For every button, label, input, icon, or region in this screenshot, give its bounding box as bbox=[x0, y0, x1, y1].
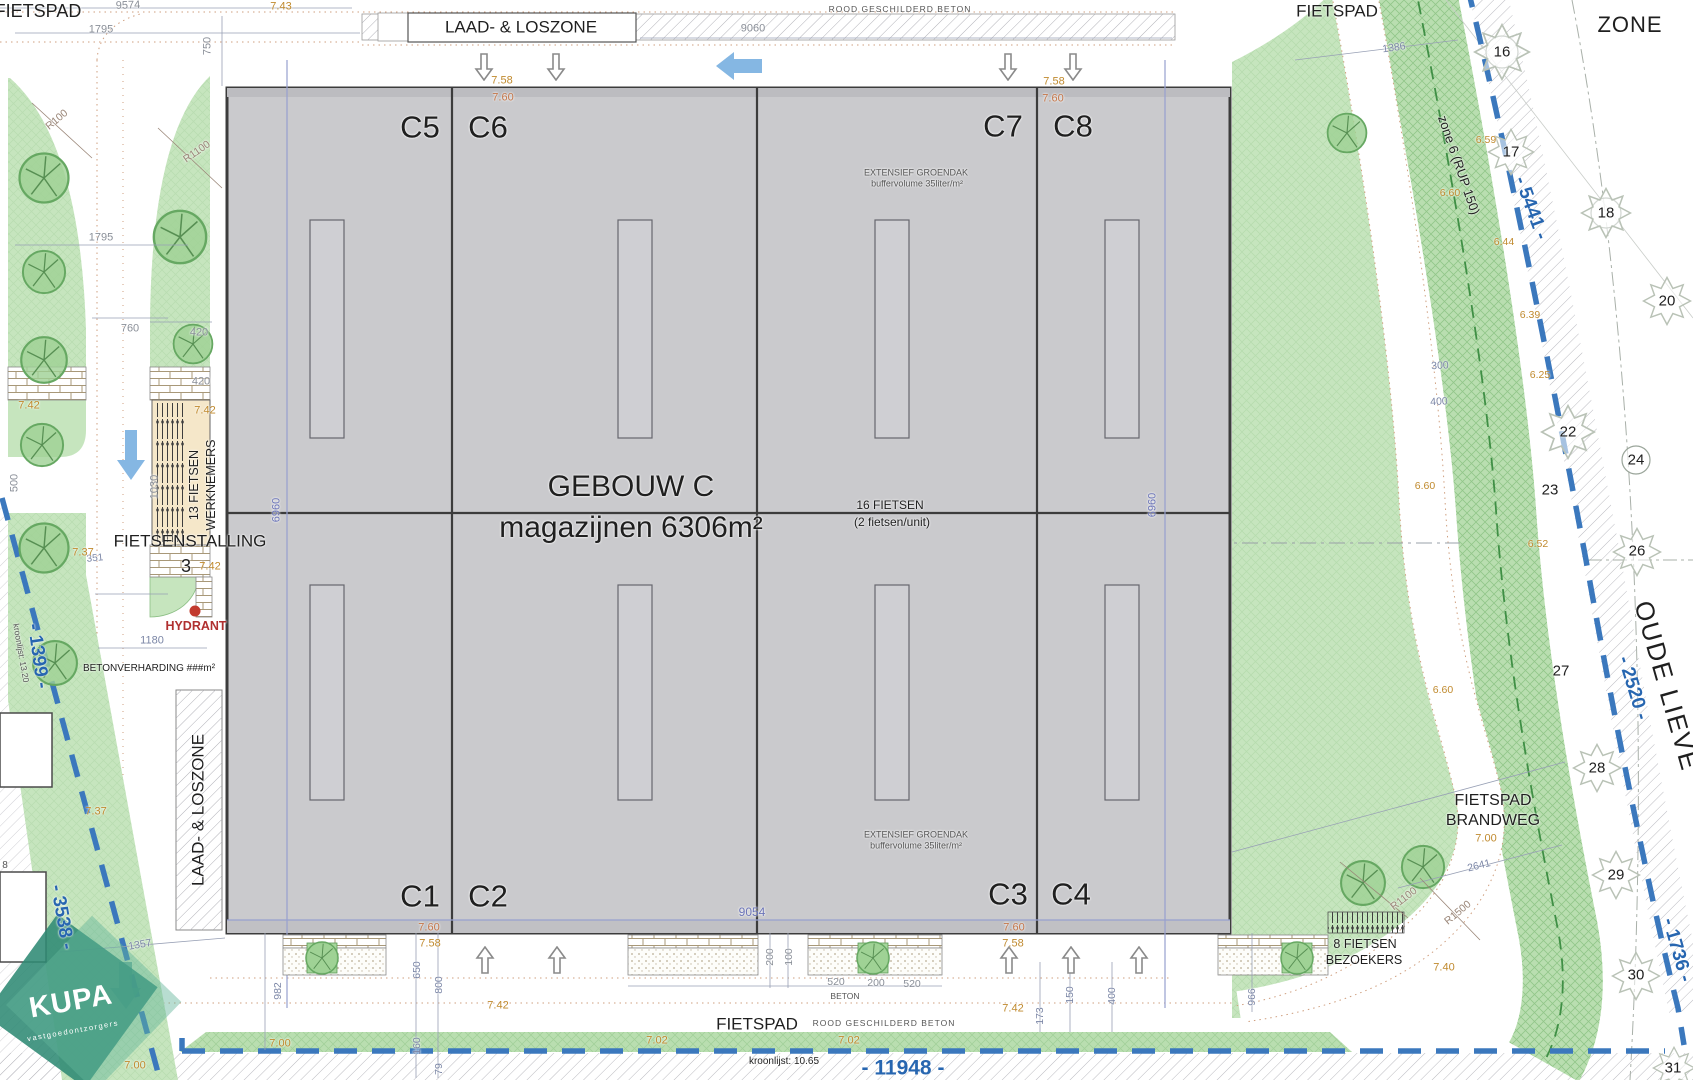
laad-loszone-top: LAAD- & LOSZONE bbox=[445, 19, 597, 36]
dim-520-a: 520 bbox=[827, 977, 845, 988]
level-7-60-d: 7.60 bbox=[1003, 923, 1024, 934]
fietsenstalling: FIETSENSTALLING bbox=[114, 533, 267, 550]
unit-c5: C5 bbox=[400, 112, 440, 143]
level-7-42-a: 7.42 bbox=[18, 401, 39, 412]
dim-160: 160 bbox=[412, 1037, 423, 1055]
level-7-60-b: 7.60 bbox=[1042, 94, 1063, 105]
level-7-60-c: 7.60 bbox=[418, 923, 439, 934]
bikes-16-line2: (2 fietsen/unit) bbox=[854, 516, 930, 528]
tree-num-31: 31 bbox=[1665, 1061, 1682, 1076]
tree-num-29: 29 bbox=[1608, 868, 1625, 883]
level-6-59: 6.59 bbox=[1476, 135, 1496, 146]
level-7-58-b: 7.58 bbox=[1043, 77, 1064, 88]
unit-c3: C3 bbox=[988, 879, 1028, 910]
dim-1736: - 1736 - bbox=[1659, 916, 1693, 984]
dim-200-rot: 200 bbox=[765, 948, 776, 966]
tree-num-18: 18 bbox=[1598, 206, 1615, 221]
groendak-top-line1: EXTENSIEF GROENDAK bbox=[864, 169, 968, 178]
level-7-37-a: 7.37 bbox=[72, 548, 93, 559]
level-7-00-b: 7.00 bbox=[124, 1061, 145, 1072]
level-7-02-b: 7.02 bbox=[838, 1036, 859, 1047]
laad-loszone-left: LAAD- & LOSZONE bbox=[190, 734, 207, 886]
hydrant-label: HYDRANT bbox=[165, 620, 226, 633]
level-7-43: 7.43 bbox=[270, 2, 291, 13]
zone6-rup150: zone 6 (RUP 150) bbox=[1436, 114, 1482, 216]
dim-420-b: 420 bbox=[192, 377, 210, 388]
unit-c8: C8 bbox=[1053, 111, 1093, 142]
beton-small: BETON bbox=[830, 992, 859, 1001]
level-7-00-a: 7.00 bbox=[269, 1039, 290, 1050]
dim-11948: - 11948 - bbox=[862, 1058, 945, 1079]
unit-c1: C1 bbox=[400, 881, 440, 912]
groendak-bottom-line2: buffervolume 35liter/m² bbox=[870, 842, 962, 851]
dim-520-b: 520 bbox=[903, 979, 921, 990]
kroonlijst-10-65: kroonlijst: 10.65 bbox=[749, 1057, 819, 1067]
level-6-39: 6.39 bbox=[1520, 310, 1540, 321]
dim-100-rot: 100 bbox=[784, 948, 795, 966]
fietspad-top-left: FIETSPAD bbox=[0, 2, 81, 20]
dim-5441: - 5441 - bbox=[1511, 174, 1551, 242]
bike-visitors-line2: BEZOEKERS bbox=[1326, 954, 1402, 967]
dim-6960-left: 6960 bbox=[272, 498, 283, 522]
level-6-60-a: 6.60 bbox=[1440, 188, 1460, 199]
level-7-58-d: 7.58 bbox=[1002, 939, 1023, 950]
fietspad-brandweg-line2: BRANDWEG bbox=[1446, 813, 1540, 829]
level-6-60-c: 6.60 bbox=[1433, 685, 1453, 696]
dim-420-a: 420 bbox=[190, 328, 208, 339]
level-7-58-a: 7.58 bbox=[491, 76, 512, 87]
tree-num-28: 28 bbox=[1589, 761, 1606, 776]
building-title: GEBOUW C bbox=[548, 472, 715, 502]
rood-beton-top: ROOD GESCHILDERD BETON bbox=[829, 5, 972, 14]
dim-1795-left: 1795 bbox=[89, 233, 113, 244]
building-subtitle: magazijnen 6306m² bbox=[499, 513, 762, 543]
bike-workers-line1: 13 FIETSEN bbox=[188, 450, 201, 520]
tree-num-20: 20 bbox=[1659, 294, 1676, 309]
fietspad-brandweg-line1: FIETSPAD bbox=[1454, 793, 1531, 809]
parcel-8: 8 bbox=[2, 861, 8, 871]
dim-1030: 1030 bbox=[150, 475, 161, 499]
unit-c4: C4 bbox=[1051, 879, 1091, 910]
dim-966: 966 bbox=[1247, 988, 1258, 1006]
level-7-40: 7.40 bbox=[1433, 963, 1454, 974]
dim-9054: 9054 bbox=[739, 906, 766, 918]
tree-num-26: 26 bbox=[1629, 544, 1646, 559]
radius-r100: R100 bbox=[44, 108, 70, 132]
level-6-25: 6.25 bbox=[1530, 370, 1550, 381]
dim-9060: 9060 bbox=[741, 24, 765, 35]
level-6-52: 6.52 bbox=[1528, 539, 1548, 550]
dim-1386: 1386 bbox=[1382, 41, 1407, 55]
level-7-00-right: 7.00 bbox=[1475, 834, 1496, 845]
bikes-16-line1: 16 FIETSEN bbox=[856, 499, 923, 511]
dim-300: 300 bbox=[1431, 360, 1449, 371]
level-7-42-e: 7.42 bbox=[1002, 1004, 1023, 1015]
dim-400-right: 400 bbox=[1430, 396, 1448, 407]
dim-400-bottom: 400 bbox=[1107, 987, 1118, 1005]
dim-1357: 1357 bbox=[128, 938, 153, 952]
stalling-count: 3 bbox=[181, 557, 191, 575]
unit-c7: C7 bbox=[983, 111, 1023, 142]
dim-2641: 2641 bbox=[1466, 858, 1491, 874]
tree-num-16: 16 bbox=[1494, 45, 1511, 60]
unit-c2: C2 bbox=[468, 881, 508, 912]
tree-num-17: 17 bbox=[1503, 145, 1520, 160]
dim-150: 150 bbox=[1065, 986, 1076, 1004]
level-6-60-b: 6.60 bbox=[1415, 481, 1435, 492]
dim-500: 500 bbox=[10, 474, 21, 492]
dim-6960-right: 6960 bbox=[1148, 493, 1159, 517]
dim-173: 173 bbox=[1035, 1007, 1046, 1025]
dim-200-a: 200 bbox=[867, 978, 885, 989]
radius-r1100-a: R1100 bbox=[182, 139, 213, 165]
tree-num-23: 23 bbox=[1542, 483, 1559, 498]
dim-1795-top: 1795 bbox=[89, 25, 113, 36]
radius-r1100-b: R1100 bbox=[1389, 886, 1419, 913]
fietspad-bottom: FIETSPAD bbox=[716, 1016, 798, 1033]
dim-79: 79 bbox=[434, 1063, 445, 1075]
level-7-60-a: 7.60 bbox=[492, 93, 513, 104]
radius-r1500: R1500 bbox=[1443, 899, 1473, 927]
dim-750: 750 bbox=[203, 37, 214, 55]
site-plan: FIETSPAD95747.431795750LAAD- & LOSZONERO… bbox=[0, 0, 1693, 1080]
level-6-44: 6.44 bbox=[1494, 237, 1514, 248]
rood-beton-bottom: ROOD GESCHILDERD BETON bbox=[813, 1019, 956, 1028]
tree-num-30: 30 bbox=[1628, 968, 1645, 983]
unit-c6: C6 bbox=[468, 112, 508, 143]
level-7-02-a: 7.02 bbox=[646, 1036, 667, 1047]
tree-num-24: 24 bbox=[1628, 453, 1645, 468]
level-7-58-c: 7.58 bbox=[419, 939, 440, 950]
plan-labels: FIETSPAD95747.431795750LAAD- & LOSZONERO… bbox=[0, 0, 1693, 1080]
dim-760-a: 760 bbox=[121, 324, 139, 335]
zone-title: ZONE bbox=[1597, 14, 1662, 36]
betonverharding: BETONVERHARDING ###m² bbox=[83, 664, 215, 674]
level-7-42-d: 7.42 bbox=[487, 1001, 508, 1012]
level-7-42-b: 7.42 bbox=[194, 406, 215, 417]
bike-visitors-line1: 8 FIETSEN bbox=[1333, 938, 1396, 951]
groendak-bottom-line1: EXTENSIEF GROENDAK bbox=[864, 831, 968, 840]
fietspad-top-right: FIETSPAD bbox=[1296, 3, 1378, 20]
groendak-top-line2: buffervolume 35liter/m² bbox=[871, 180, 963, 189]
dim-3538: - 3538 - bbox=[47, 883, 77, 951]
dim-982: 982 bbox=[273, 982, 284, 1000]
kupa-logo-text: KUPA bbox=[27, 980, 115, 1023]
dim-800: 800 bbox=[434, 976, 445, 994]
dim-9574: 9574 bbox=[116, 0, 141, 12]
level-7-42-c: 7.42 bbox=[199, 562, 220, 573]
tree-num-27: 27 bbox=[1553, 664, 1570, 679]
tree-num-22: 22 bbox=[1560, 425, 1577, 440]
bike-workers-line2: WERKNEMERS bbox=[205, 440, 218, 531]
dim-650: 650 bbox=[412, 961, 423, 979]
dim-1180: 1180 bbox=[140, 636, 164, 647]
level-7-37-b: 7.37 bbox=[85, 807, 106, 818]
